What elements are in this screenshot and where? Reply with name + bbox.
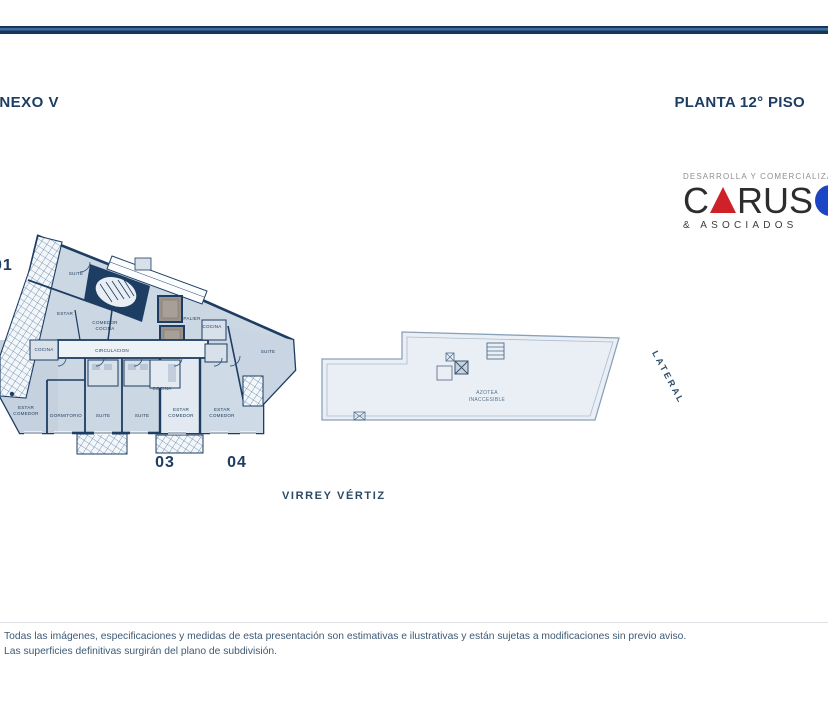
column-dot	[10, 392, 14, 396]
room-label-comedor-right: COMEDOR	[209, 413, 235, 418]
room-label-comedor: COMEDOR	[92, 320, 118, 325]
azotea-label-line1: AZOTEA	[476, 390, 498, 396]
room-label-estar-center: ESTAR	[173, 407, 189, 412]
unit-04-label: 04	[227, 454, 247, 471]
logo-wordmark: CRUS	[683, 184, 828, 218]
annex-label: ANEXO V	[0, 94, 59, 111]
logo-letters-rus: RUS	[737, 180, 813, 221]
caruso-logo: DESARROLLA Y COMERCIALIZA CRUS & ASOCIAD…	[683, 172, 828, 231]
room-label-estar-left: ESTAR	[18, 405, 34, 410]
unit-01-label: 01	[0, 257, 13, 274]
room-label-cocina: COCINA	[95, 326, 115, 331]
top-accent-bar	[0, 26, 828, 34]
logo-subtitle: & ASOCIADOS	[683, 220, 828, 231]
disclaimer: Todas las imágenes, especificaciones y m…	[4, 630, 824, 659]
room-label-cocina-left: COCINA	[34, 347, 54, 352]
room-label-suite-b: SUITE	[135, 413, 150, 418]
room-label-dormitorio: DORMITORIO	[50, 413, 82, 418]
room-label-cocina-center: COCINA	[152, 386, 172, 391]
logo-circle-o-icon	[815, 185, 828, 216]
room-label-comedor-left: COMEDOR	[13, 411, 39, 416]
room-label-comedor-center: COMEDOR	[168, 413, 194, 418]
room-label-circulacion: CIRCULACION	[95, 348, 129, 353]
logo-letter-c: C	[683, 180, 709, 221]
footer-divider	[0, 622, 828, 623]
room-label-palier: PALIER	[183, 316, 201, 321]
street-label: VIRREY VÉRTIZ	[282, 490, 386, 502]
room-label-suite-top: SUITE	[69, 271, 84, 276]
room-label-cocina-mid: COCINA	[202, 324, 222, 329]
azotea-outline: AZOTEA INACCESIBLE	[322, 332, 619, 420]
azotea-label-line2: INACCESIBLE	[469, 397, 506, 403]
disclaimer-line1: Todas las imágenes, especificaciones y m…	[4, 630, 824, 645]
disclaimer-line2: Las superficies definitivas surgirán del…	[4, 645, 824, 660]
unit-03-label: 03	[155, 454, 175, 471]
room-label-suite-right: SUITE	[261, 349, 276, 354]
logo-triangle-a-icon	[710, 187, 736, 213]
circulation-corridor	[58, 340, 208, 358]
page-title: PLANTA 12° PISO	[674, 94, 805, 111]
room-label-estar: ESTAR	[57, 311, 73, 316]
brochure-page: ANEXO V PLANTA 12° PISO DESARROLLA Y COM…	[0, 0, 828, 703]
room-label-suite-a: SUITE	[96, 413, 111, 418]
room-label-estar-right: ESTAR	[214, 407, 230, 412]
floor-plan-svg: SUITE ESTAR COMEDOR COCINA COCINA CIRCUL…	[0, 228, 700, 478]
